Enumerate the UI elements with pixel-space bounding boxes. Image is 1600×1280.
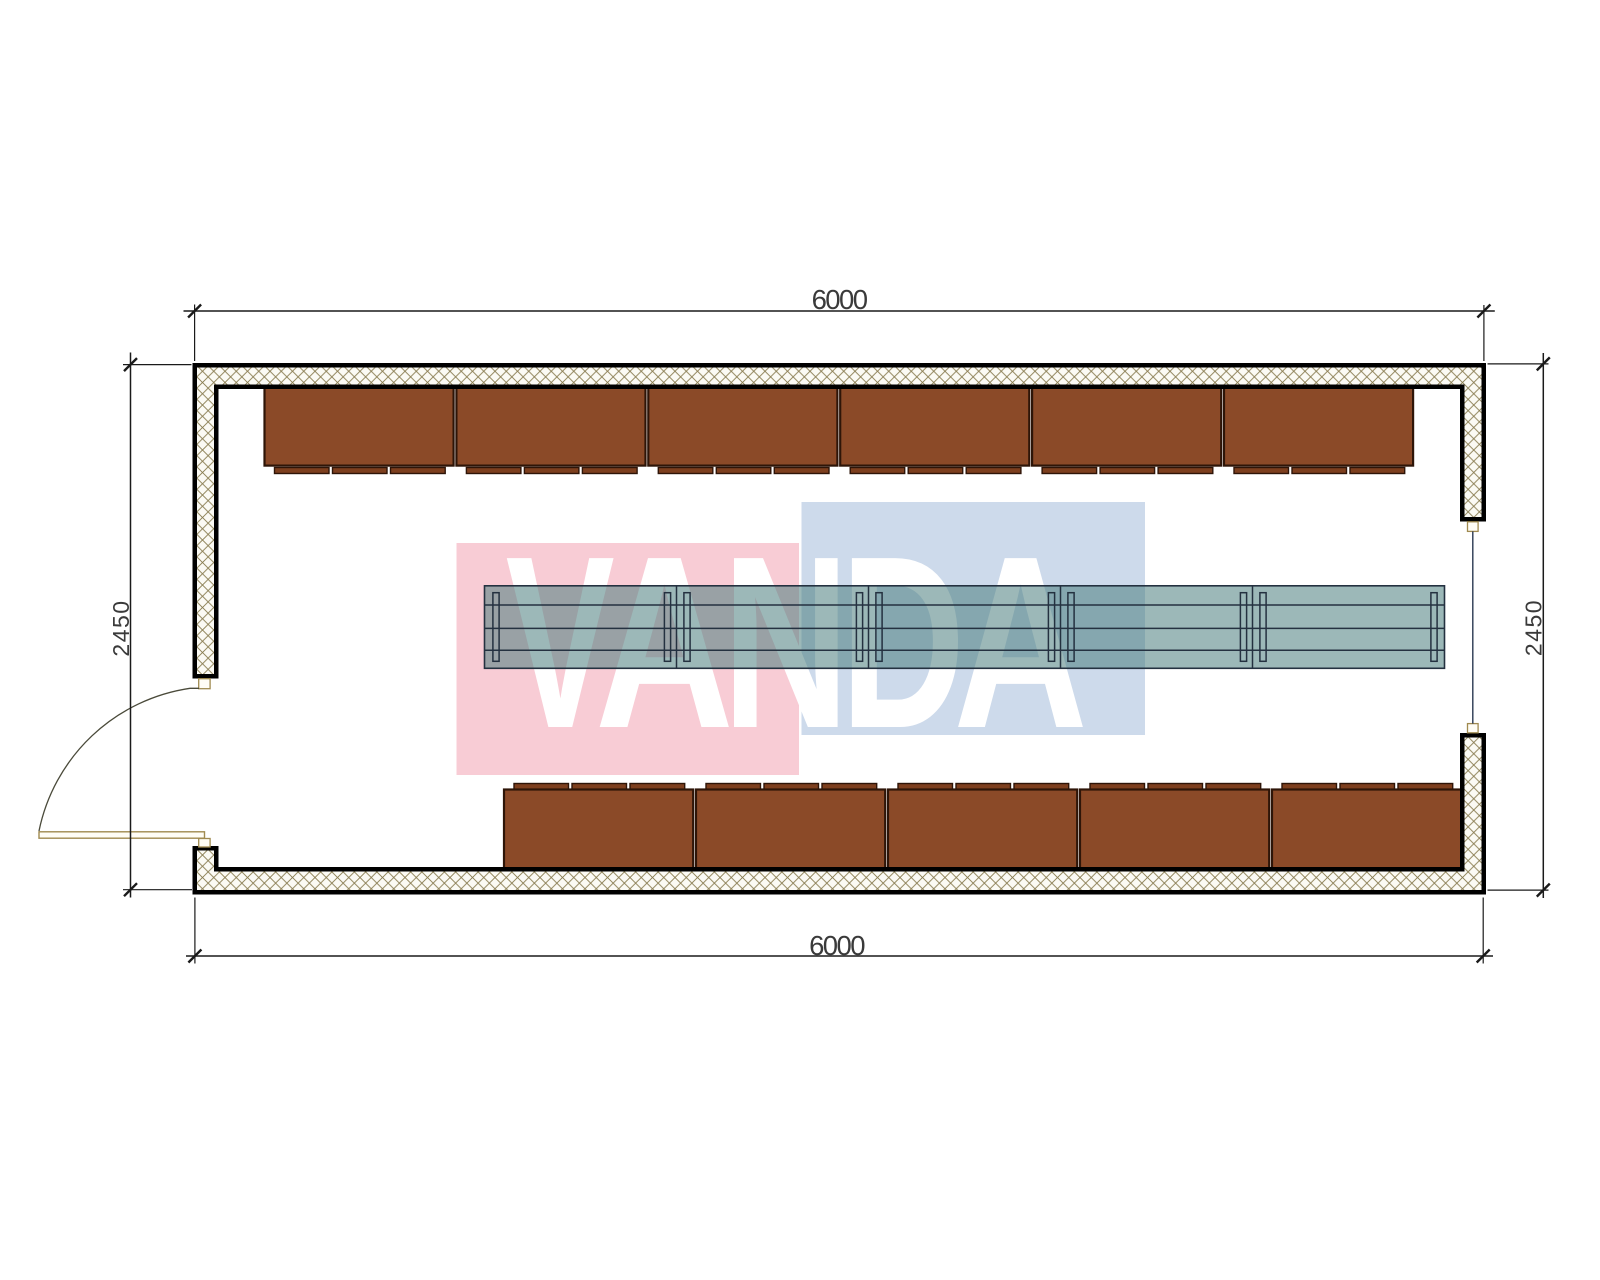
svg-text:2450: 2450 xyxy=(1521,599,1547,656)
svg-text:6000: 6000 xyxy=(812,284,868,315)
svg-text:2450: 2450 xyxy=(108,599,134,656)
svg-text:6000: 6000 xyxy=(809,930,865,961)
